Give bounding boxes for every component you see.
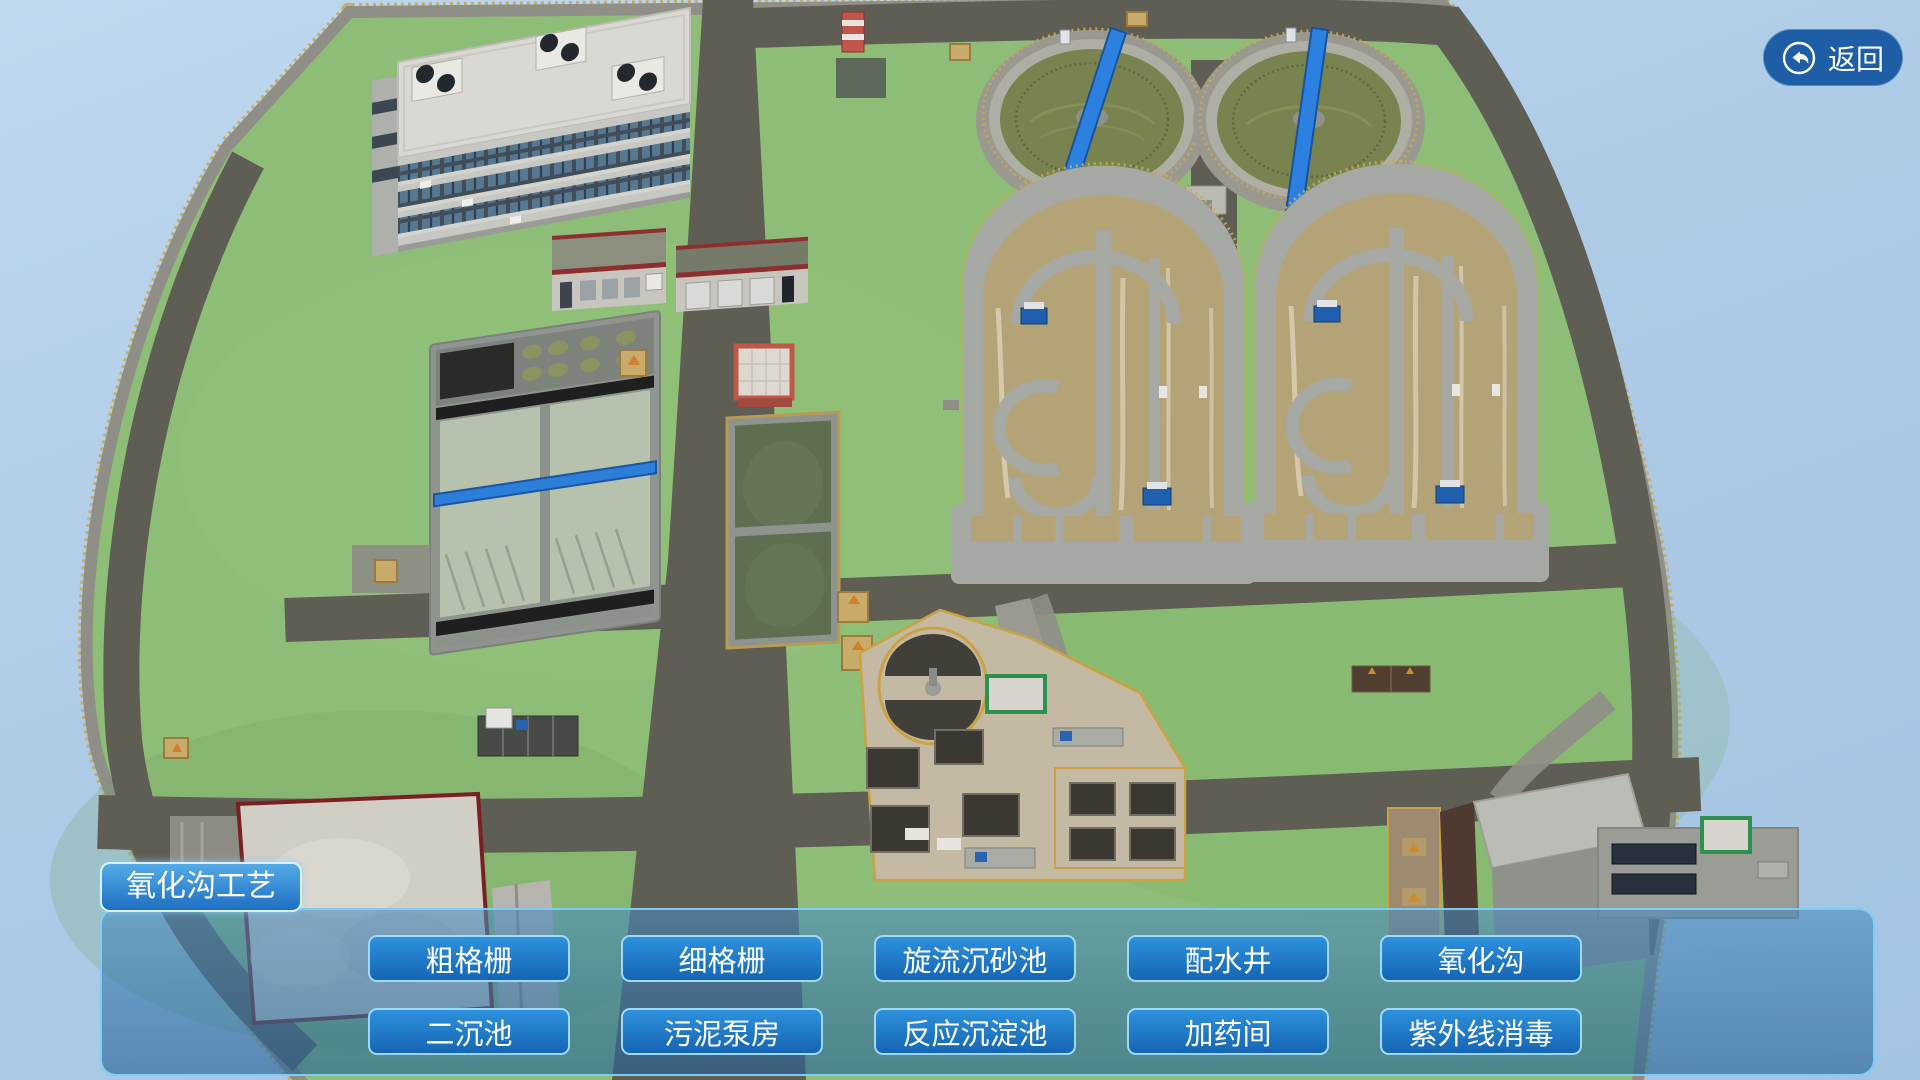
process-button-secondary-clarifier[interactable]: 二沉池 [368,1008,570,1055]
red-roof-building-3d [736,346,792,407]
process-button-vortex-grit-chamber[interactable]: 旋流沉砂池 [874,935,1076,982]
workshop-building-right-3d [676,237,808,312]
uv-channel-3d [1598,818,1798,918]
process-button-oxidation-ditch[interactable]: 氧化沟 [1380,935,1582,982]
process-button-reaction-sedimentation[interactable]: 反应沉淀池 [874,1008,1076,1055]
app-window: 返回 氧化沟工艺 粗格栅 细格栅 旋流沉砂池 配水井 氧化沟 二沉池 污泥泵房 … [0,0,1920,1080]
process-button-uv-disinfection[interactable]: 紫外线消毒 [1380,1008,1582,1055]
oxidation-ditch-right-3d [1244,162,1549,582]
process-button-sludge-pump-house[interactable]: 污泥泵房 [621,1008,823,1055]
process-title-tag: 氧化沟工艺 [100,862,302,912]
green-framed-unit [1702,818,1750,852]
green-framed-unit [987,676,1045,712]
process-button-distribution-well[interactable]: 配水井 [1127,935,1329,982]
process-button-coarse-screen[interactable]: 粗格栅 [368,935,570,982]
back-button-label: 返回 [1828,38,1884,78]
process-button-fine-screen[interactable]: 细格栅 [621,935,823,982]
back-arrow-icon [1780,39,1818,77]
oxidation-ditch-left-3d [943,164,1256,584]
pond-3d [727,412,839,648]
process-button-dosing-room[interactable]: 加药间 [1127,1008,1329,1055]
back-button[interactable]: 返回 [1763,29,1903,86]
workshop-building-left-3d [552,228,666,311]
